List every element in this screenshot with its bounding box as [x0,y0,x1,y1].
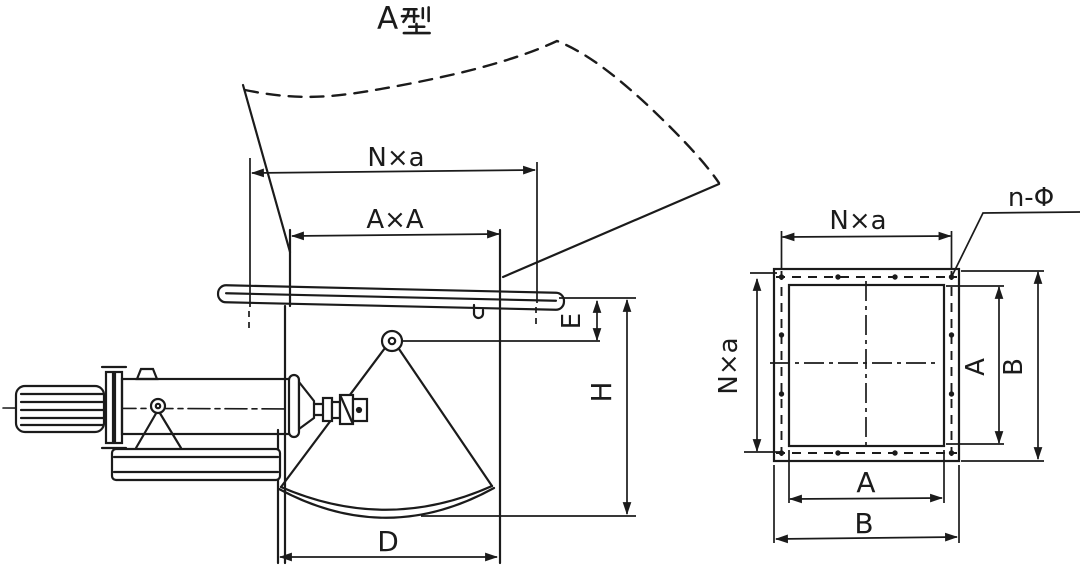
trunnion-mount [136,399,181,448]
dim-label-a-bottom: A [856,466,875,499]
dim-label-axa: A×A [366,205,424,235]
hopper-right-wall-line [503,184,719,277]
dim-label-a-right: A [961,358,991,376]
callout-label-n-phi: n-Φ [1008,183,1054,213]
electric-motor [16,386,104,432]
leader-line-bolt-callout [952,212,1080,276]
rod-end-bell [299,382,314,429]
engineering-drawing-sheet: A [0,0,1080,586]
side-elevation-view [3,41,719,563]
mounting-base [112,449,280,480]
sector-gate [279,331,494,518]
dim-label-b-bottom: B [854,507,873,540]
valve-technical-drawing: N×a A×A E H D [0,0,1080,586]
dim-label-nxa-flange-top: N×a [829,206,886,236]
rod-coupling [314,395,367,424]
dim-label-b-right: B [999,358,1029,376]
center-crosshair [770,281,938,447]
cylinder-port-fitting [137,369,157,379]
dim-label-nxa-flange-left: N×a [714,337,744,394]
dim-line-nxa-top [783,236,951,237]
cylinder-end-cap [289,375,299,437]
hopper-phantom-outline [245,41,719,183]
dim-label-nxa-top: N×a [367,143,424,173]
top-flange-plate [218,285,564,310]
flange-face-view [770,269,959,461]
dim-label-d: D [377,525,399,558]
flange-view-dimensions [744,212,1080,543]
gate-pivot [382,331,402,351]
dim-label-h: H [585,381,618,402]
dim-label-e: E [557,313,587,329]
